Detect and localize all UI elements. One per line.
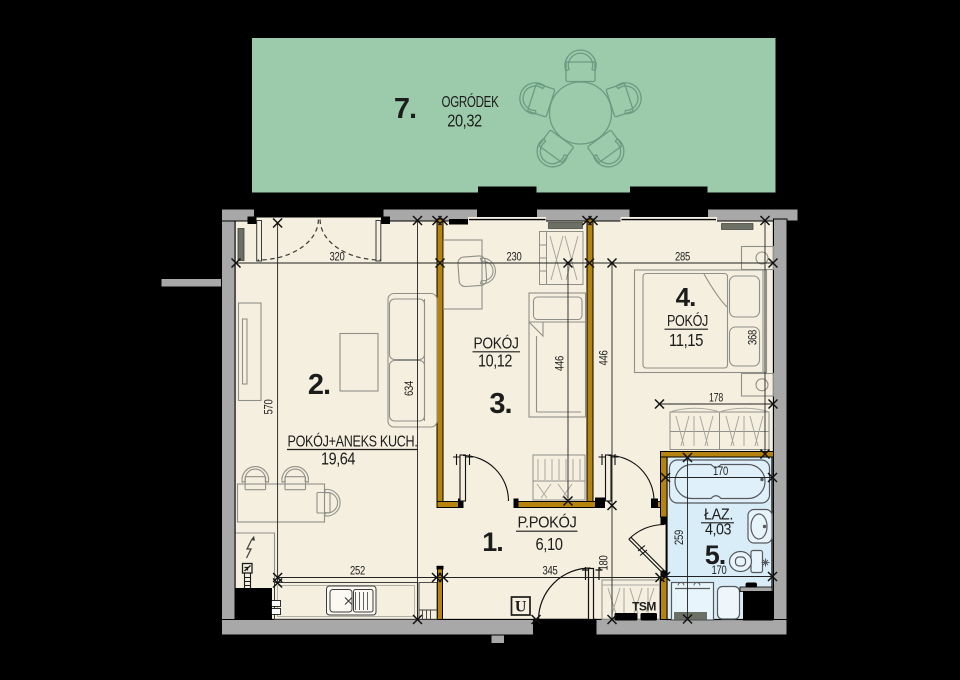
svg-text:U: U — [515, 599, 527, 616]
svg-text:7.: 7. — [394, 93, 416, 125]
svg-text:1.: 1. — [482, 527, 503, 557]
svg-text:259: 259 — [674, 530, 686, 545]
svg-text:6,10: 6,10 — [536, 534, 564, 554]
svg-text:2.: 2. — [308, 369, 330, 401]
svg-text:230: 230 — [507, 252, 522, 264]
svg-text:4,03: 4,03 — [705, 522, 731, 539]
svg-text:4.: 4. — [676, 282, 696, 312]
svg-text:285: 285 — [675, 252, 690, 264]
svg-text:446: 446 — [555, 356, 567, 371]
svg-text:OGRÓDEK: OGRÓDEK — [442, 92, 500, 111]
svg-text:634: 634 — [404, 380, 416, 396]
svg-text:178: 178 — [709, 393, 723, 405]
svg-text:570: 570 — [264, 400, 276, 415]
svg-text:368: 368 — [748, 330, 760, 345]
svg-text:320: 320 — [330, 252, 345, 264]
svg-text:446: 446 — [599, 351, 611, 366]
svg-text:170: 170 — [713, 466, 728, 478]
svg-text:5.: 5. — [705, 540, 726, 570]
svg-text:3.: 3. — [489, 388, 511, 420]
svg-text:POKÓJ: POKÓJ — [667, 311, 708, 330]
svg-text:10,12: 10,12 — [478, 351, 512, 371]
svg-text:11,15: 11,15 — [669, 330, 703, 350]
svg-text:P.POKÓJ: P.POKÓJ — [518, 513, 577, 532]
svg-text:180: 180 — [599, 556, 611, 571]
svg-text:19,64: 19,64 — [321, 449, 356, 469]
svg-text:TSM: TSM — [632, 600, 656, 614]
svg-text:252: 252 — [350, 566, 365, 578]
svg-text:345: 345 — [543, 566, 558, 578]
svg-text:20,32: 20,32 — [447, 111, 482, 131]
